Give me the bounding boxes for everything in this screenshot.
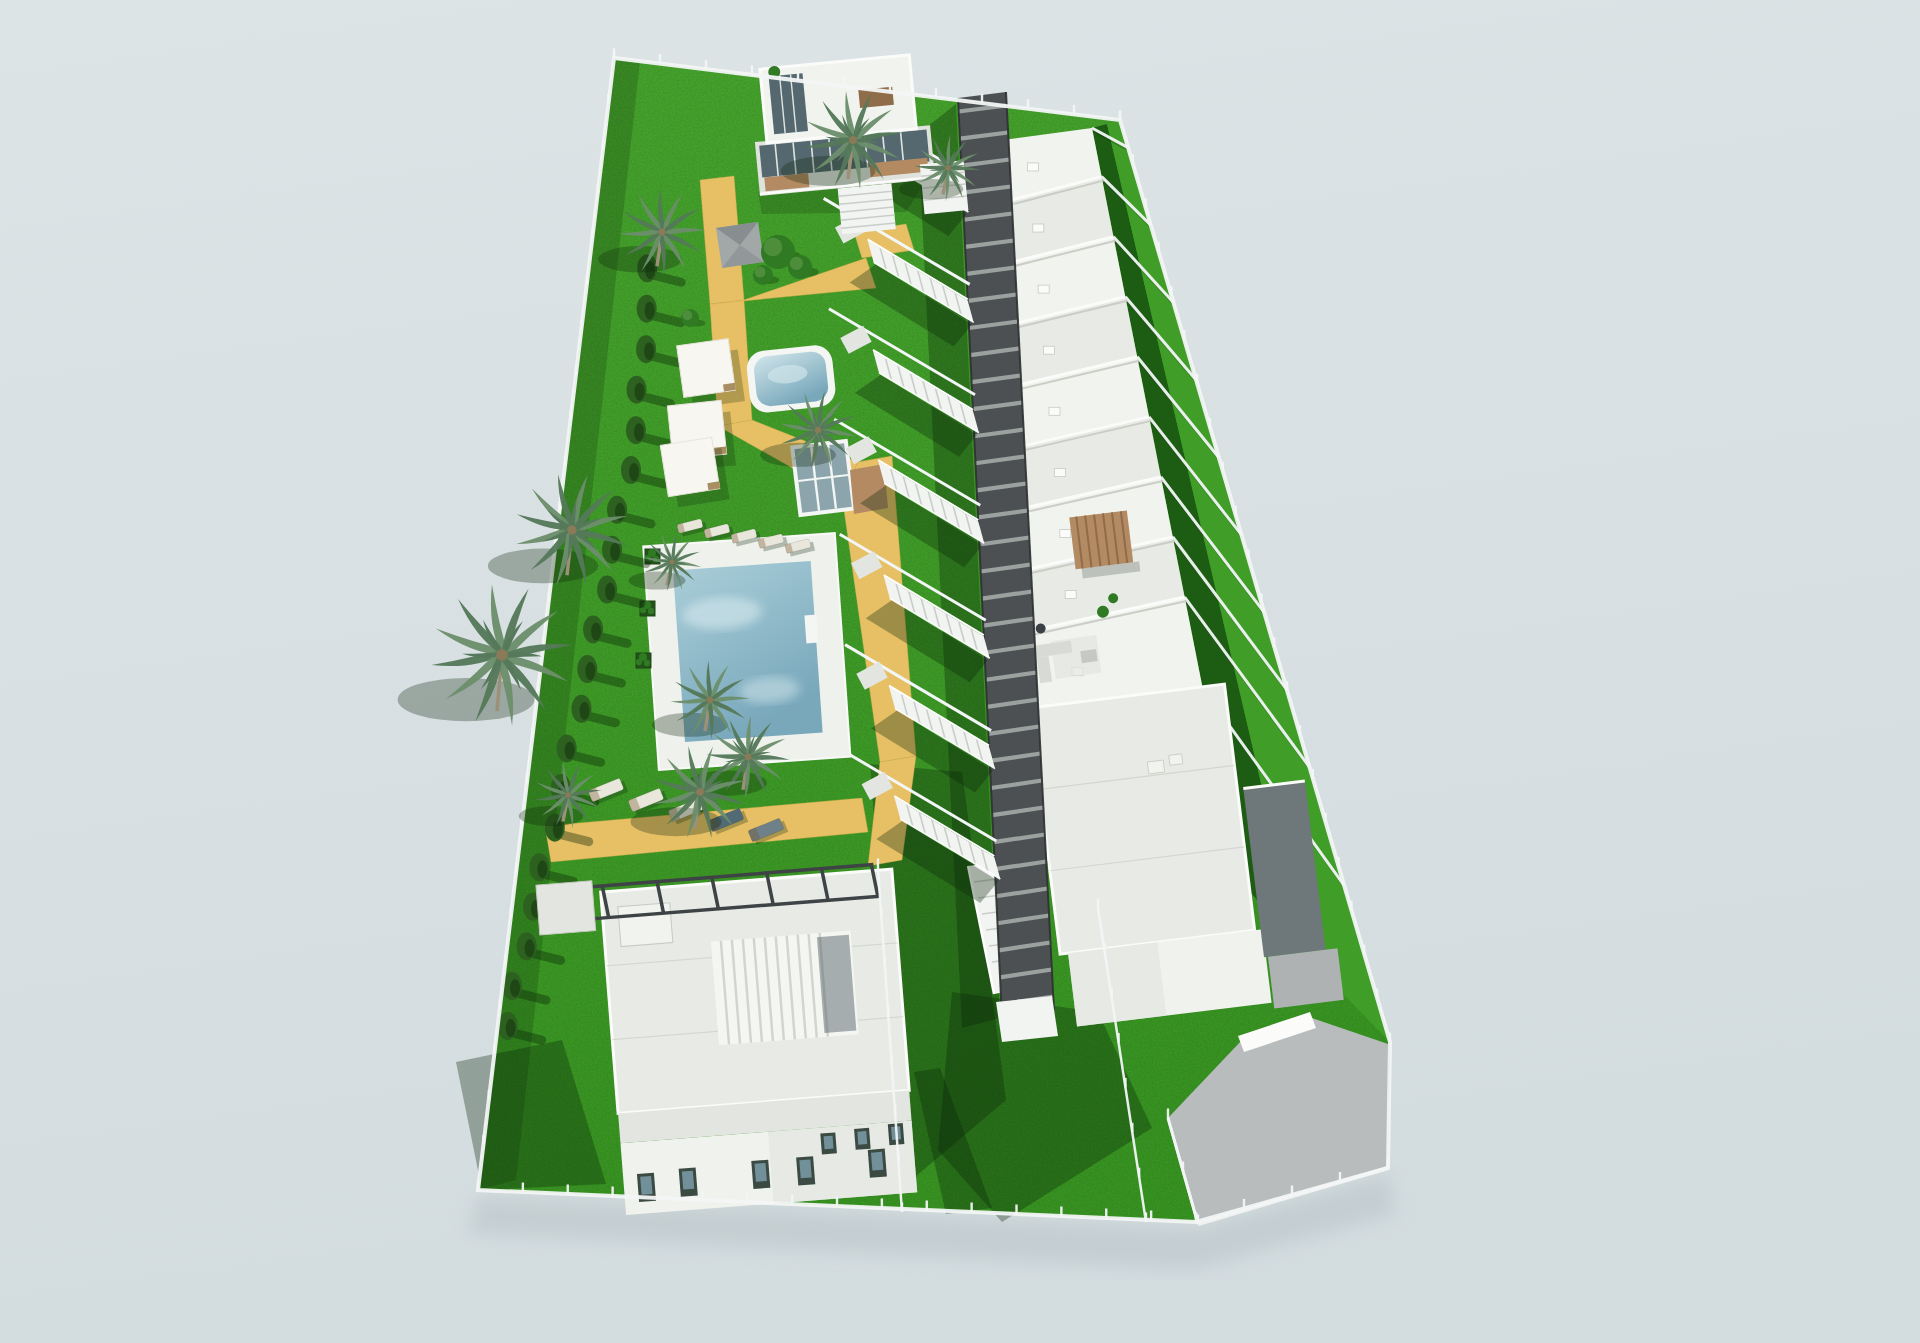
render-viewport: architectural-render	[0, 0, 1920, 1343]
render-canvas: architectural-render	[0, 0, 1920, 1343]
gazebo	[716, 222, 764, 268]
kids-pool	[745, 344, 837, 415]
walkway-landing	[996, 996, 1058, 1042]
